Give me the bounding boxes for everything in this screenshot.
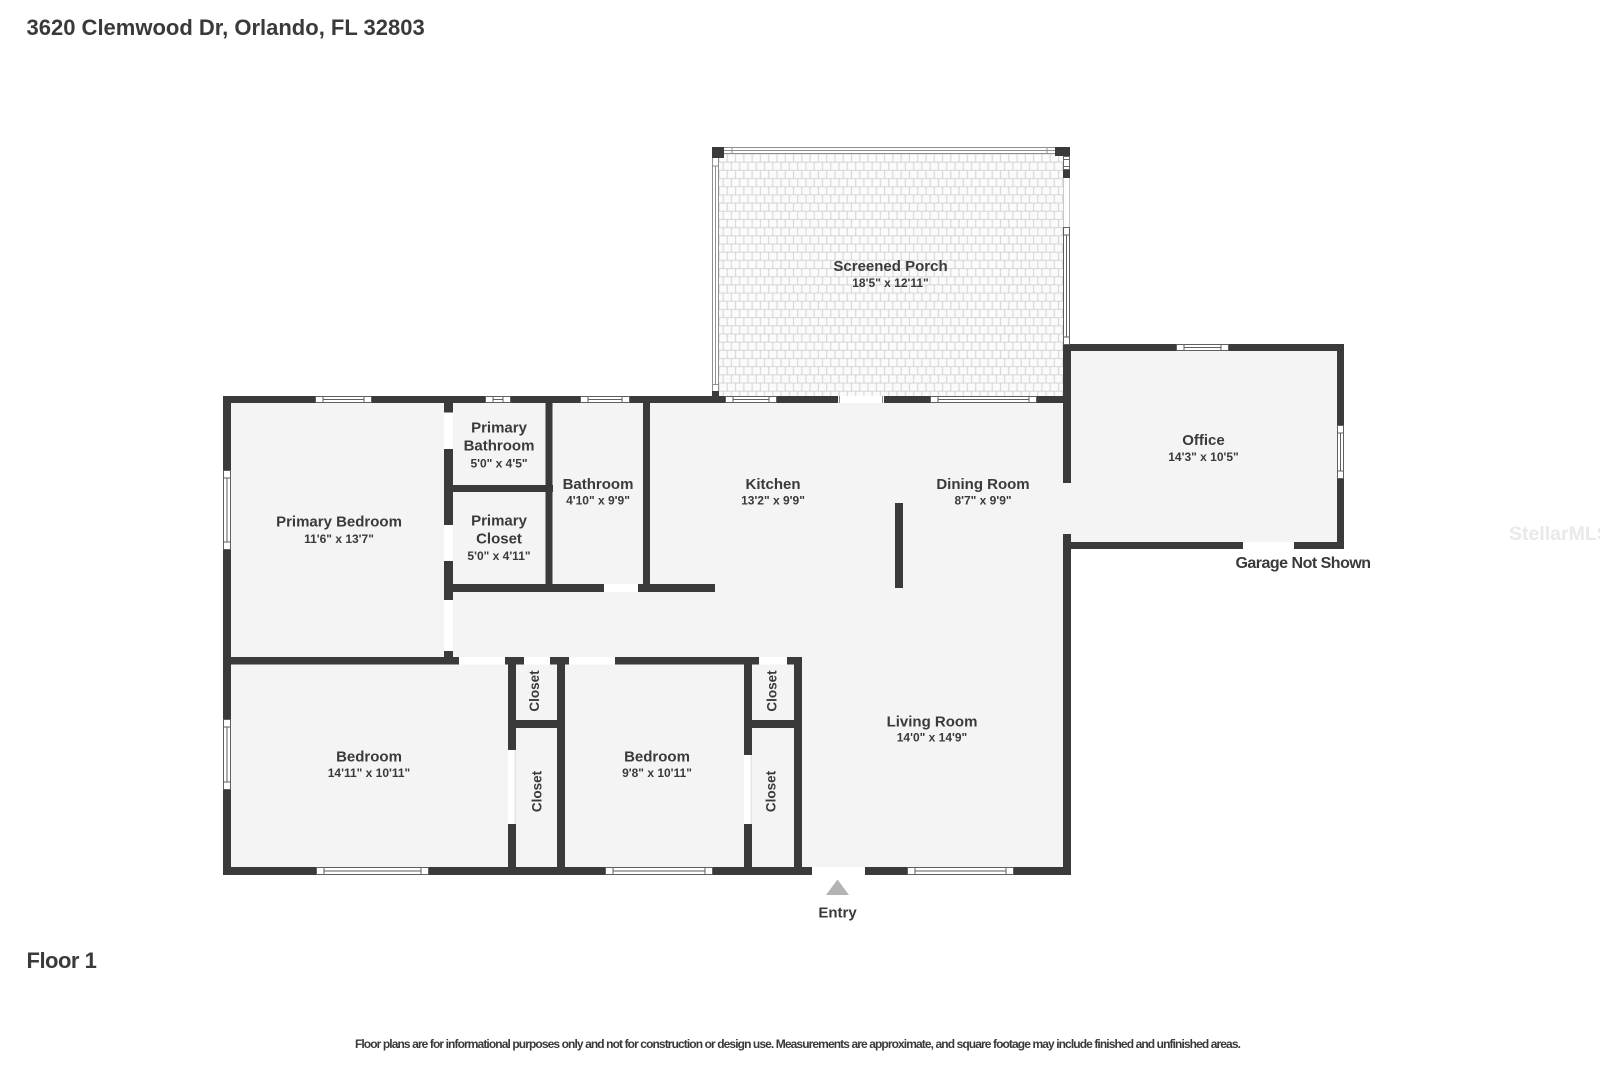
svg-text:Garage Not Shown: Garage Not Shown [1235, 555, 1370, 572]
svg-text:5'0" x 4'11": 5'0" x 4'11" [467, 549, 530, 563]
svg-text:Screened Porch: Screened Porch [833, 258, 947, 275]
svg-text:14'3" x 10'5": 14'3" x 10'5" [1168, 450, 1238, 464]
svg-text:4'10" x 9'9": 4'10" x 9'9" [566, 494, 630, 508]
svg-text:Kitchen: Kitchen [745, 476, 800, 493]
svg-text:Closet: Closet [765, 670, 780, 712]
svg-text:14'0" x 14'9": 14'0" x 14'9" [897, 731, 967, 745]
svg-text:Floor plans are for informatio: Floor plans are for informational purpos… [355, 1037, 1241, 1051]
svg-text:Bathroom: Bathroom [464, 438, 535, 455]
svg-text:Primary: Primary [471, 420, 528, 437]
svg-text:3620 Clemwood Dr, Orlando, FL: 3620 Clemwood Dr, Orlando, FL 32803 [27, 15, 425, 40]
svg-text:18'5" x 12'11": 18'5" x 12'11" [852, 276, 928, 290]
svg-text:14'11" x 10'11": 14'11" x 10'11" [328, 766, 411, 780]
svg-text:Primary: Primary [471, 513, 528, 530]
svg-text:Bedroom: Bedroom [336, 749, 402, 766]
svg-text:Floor 1: Floor 1 [27, 948, 97, 973]
svg-text:Closet: Closet [476, 531, 522, 548]
svg-text:Closet: Closet [527, 670, 542, 712]
svg-text:8'7" x 9'9": 8'7" x 9'9" [954, 494, 1011, 508]
svg-text:Closet: Closet [764, 770, 779, 812]
svg-text:5'0" x 4'5": 5'0" x 4'5" [470, 457, 527, 471]
svg-text:Primary Bedroom: Primary Bedroom [276, 514, 402, 531]
svg-text:Entry: Entry [818, 905, 857, 922]
svg-text:Dining Room: Dining Room [936, 476, 1029, 493]
svg-text:StellarMLS: StellarMLS [1509, 523, 1600, 545]
svg-text:13'2" x 9'9": 13'2" x 9'9" [741, 494, 805, 508]
svg-text:Living Room: Living Room [887, 714, 978, 731]
svg-text:Office: Office [1182, 432, 1225, 449]
svg-text:11'6" x 13'7": 11'6" x 13'7" [304, 532, 374, 546]
svg-text:9'8" x 10'11": 9'8" x 10'11" [622, 766, 692, 780]
svg-text:Bathroom: Bathroom [563, 476, 634, 493]
svg-text:Bedroom: Bedroom [624, 749, 690, 766]
svg-text:Closet: Closet [530, 770, 545, 812]
